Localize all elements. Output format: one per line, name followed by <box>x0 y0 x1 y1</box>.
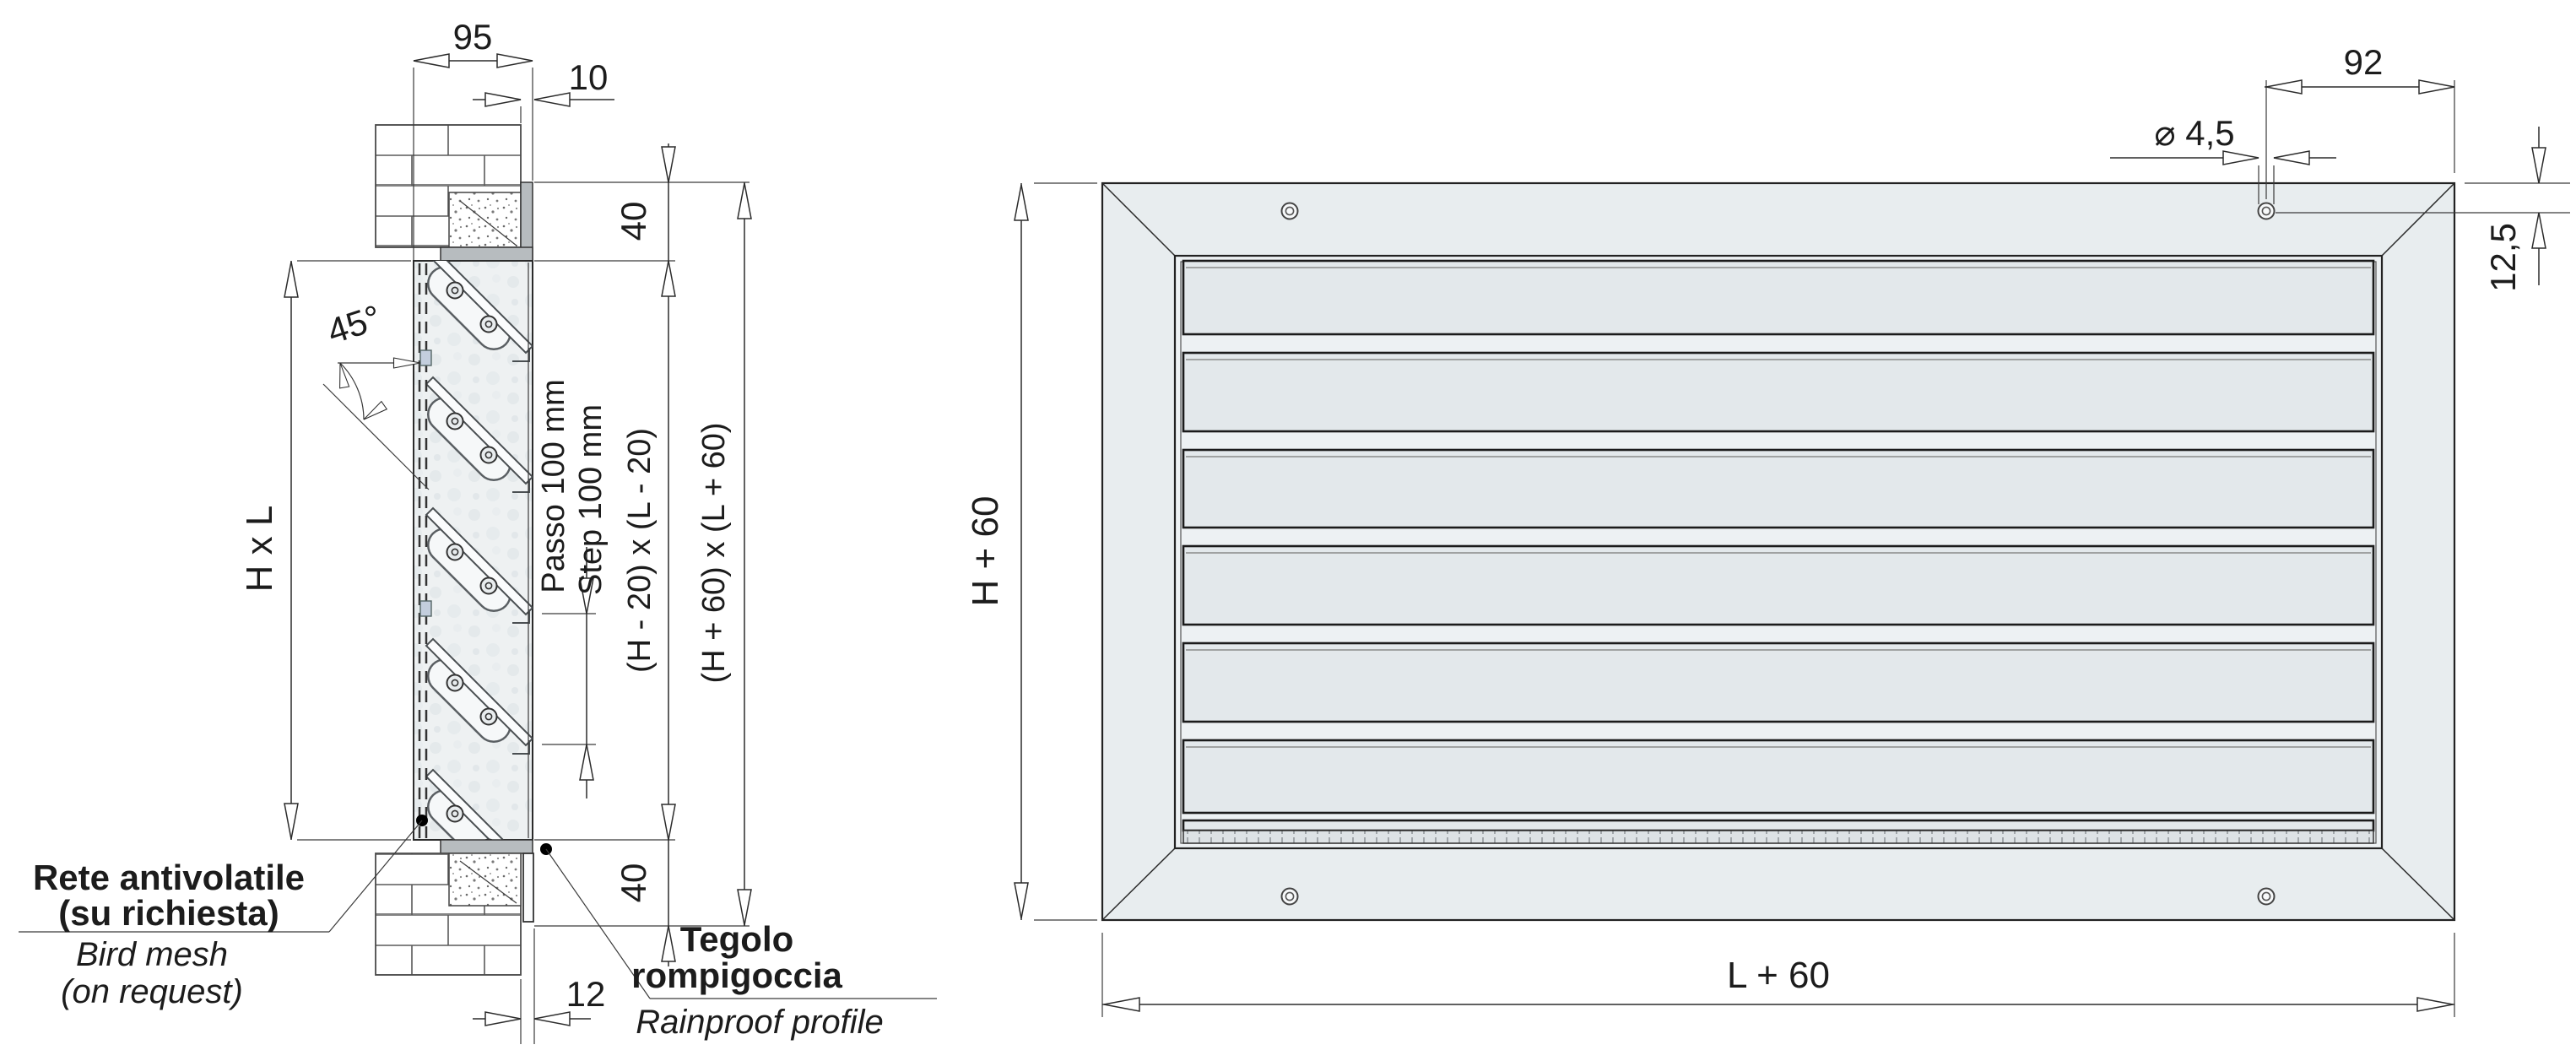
louver-blade-row <box>1183 740 2373 813</box>
louver-blade-row <box>1183 643 2373 722</box>
dim-overhang-label: 10 <box>569 57 609 97</box>
dim-outer-label: (H + 60) x (L + 60) <box>696 422 732 683</box>
dim-pitch-en-label: Step 100 mm <box>573 404 609 595</box>
front-view: 92 ⌀ 4,5 12,5 H + 60 L + 60 <box>965 42 2570 1017</box>
label-mesh-en-line1: Bird mesh <box>76 936 228 973</box>
dim-depth-label: 95 <box>453 17 493 57</box>
fixing-hole <box>1282 889 1298 905</box>
mesh-clip <box>420 350 431 365</box>
louver-blade-row <box>1183 353 2373 431</box>
rainproof-drip-profile <box>523 853 533 922</box>
mesh-clip <box>420 601 431 616</box>
dim-hole-offset-label: 92 <box>2344 42 2384 82</box>
louver-blade-row <box>1183 450 2373 528</box>
label-drip-it-line1: Tegolo <box>680 919 794 959</box>
dim-height-label: H + 60 <box>965 496 1006 607</box>
dim-opening-label: H x L <box>239 506 280 593</box>
dim-flange-bottom-label: 40 <box>614 863 653 903</box>
dim-width-label: L + 60 <box>1727 955 1830 996</box>
label-mesh-en-line2: (on request) <box>61 973 243 1010</box>
dim-flange-top-label: 40 <box>614 202 653 241</box>
frame-profile-top-horizontal <box>441 247 533 261</box>
dim-drip-label: 12 <box>566 974 606 1014</box>
dim-hole-top-label: 12,5 <box>2483 223 2523 292</box>
dim-inner-label: (H - 20) x (L - 20) <box>622 428 658 673</box>
label-mesh-it-line1: Rete antivolatile <box>33 858 305 897</box>
label-mesh-it-line2: (su richiesta) <box>58 893 279 933</box>
technical-drawing: 95 10 45° H x L Passo 100 mm Step 100 mm <box>0 0 2576 1061</box>
mortar-block-top <box>449 192 521 247</box>
dim-hole-diameter-label: ⌀ 4,5 <box>2154 113 2234 153</box>
fixing-hole <box>1282 203 1298 219</box>
fixing-hole <box>2259 889 2275 905</box>
drawing-canvas: 95 10 45° H x L Passo 100 mm Step 100 mm <box>0 0 2576 1061</box>
rainproof-strip-front <box>1183 831 2373 843</box>
louver-blade-row <box>1183 820 2373 831</box>
dim-pitch-it-label: Passo 100 mm <box>536 379 571 593</box>
label-drip-en: Rainproof profile <box>636 1004 884 1041</box>
louver-blade-row <box>1183 546 2373 625</box>
frame-profile-bottom <box>441 840 533 853</box>
fixing-hole <box>2259 203 2275 219</box>
louver-blade-row <box>1183 261 2373 334</box>
section-view: 95 10 45° H x L Passo 100 mm Step 100 mm <box>19 17 937 1044</box>
dim-blade-angle-label: 45° <box>322 297 386 351</box>
label-drip-it-line2: rompigoccia <box>631 955 842 995</box>
